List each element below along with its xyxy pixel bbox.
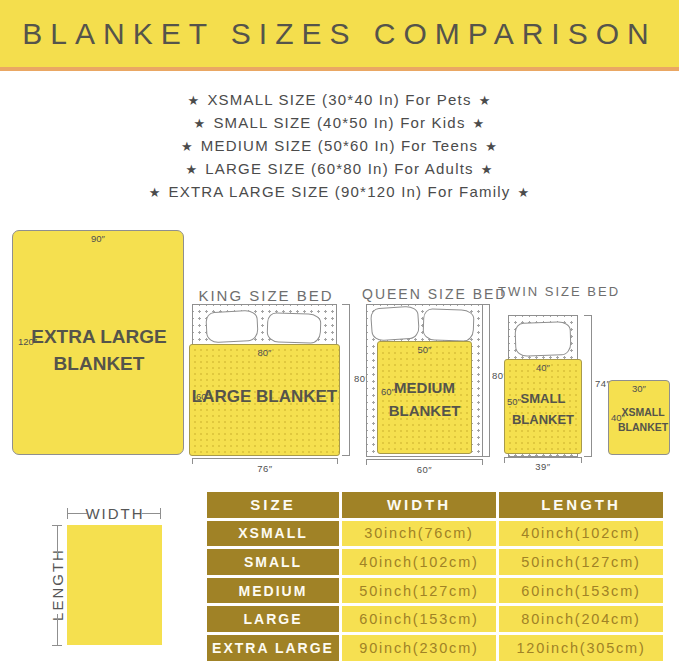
size-list-text: SMALL SIZE (40*50 In) For Kids	[213, 114, 465, 131]
extra-large-top-dim: 90″	[13, 233, 183, 244]
page-title: BLANKET SIZES COMPARISON	[22, 17, 656, 51]
large-blanket-label: LARGE BLANKET	[190, 387, 339, 407]
xsmall-top-dim: 30″	[609, 383, 669, 394]
table-row-size: SMALL	[207, 549, 339, 575]
width-dim-line	[142, 513, 161, 514]
medium-blanket: 50″ 60″ MEDIUM BLANKET	[377, 341, 472, 454]
table-row-width: 30inch(76cm)	[342, 521, 496, 547]
king-bed-title: KING SIZE BED	[192, 287, 340, 304]
pillow	[422, 308, 474, 342]
twin-bed-title: TWIN SIZE BED	[498, 284, 598, 299]
length-dim-tick	[52, 645, 62, 646]
size-table: SIZE WIDTH LENGTH XSMALL 30inch(76cm) 40…	[207, 492, 663, 661]
star-icon: ★	[174, 139, 201, 154]
extra-large-blanket-label: EXTRA LARGE BLANKET	[29, 323, 169, 377]
legend-width-label: WIDTH	[85, 505, 145, 522]
queen-height-dim-line	[482, 304, 490, 457]
pillow	[370, 305, 420, 341]
legend-length-label: LENGTH	[49, 545, 66, 625]
large-blanket: 80″ 60″ LARGE BLANKET	[189, 344, 340, 456]
table-row-size: MEDIUM	[207, 578, 339, 604]
pillow	[266, 312, 321, 344]
medium-blanket-top-dim: 50″	[378, 344, 471, 355]
table-row-size: EXTRA LARGE	[207, 635, 339, 661]
table-row-width: 60inch(153cm)	[342, 606, 496, 632]
king-width-dim: 76″	[192, 463, 338, 474]
table-row-length: 60inch(153cm)	[499, 578, 663, 604]
table-header-length: LENGTH	[499, 492, 663, 518]
xsmall-blanket: 30″ 40″ XSMALL BLANKET	[608, 380, 670, 455]
width-dim-tick	[67, 508, 68, 519]
queen-bed-title: QUEEN SIZE BED	[362, 286, 487, 302]
size-list-item: ★SMALL SIZE (40*50 In) For Kids★	[0, 111, 679, 134]
star-icon: ★	[510, 185, 537, 200]
king-height-dim-line	[342, 304, 350, 456]
size-list-item: ★EXTRA LARGE SIZE (90*120 In) For Family…	[0, 180, 679, 203]
table-row-width: 90inch(230cm)	[342, 635, 496, 661]
star-icon: ★	[472, 93, 499, 108]
table-row-length: 50inch(127cm)	[499, 549, 663, 575]
table-row-size: LARGE	[207, 606, 339, 632]
large-blanket-top-dim: 80″	[190, 347, 339, 358]
table-row-size: XSMALL	[207, 521, 339, 547]
xsmall-blanket-label: XSMALL BLANKET	[618, 405, 668, 435]
star-icon: ★	[142, 185, 169, 200]
star-icon: ★	[187, 116, 214, 131]
size-list: ★XSMALL SIZE (30*40 In) For Pets★ ★SMALL…	[0, 88, 679, 203]
pillow	[205, 310, 259, 344]
small-blanket-top-dim: 40″	[505, 362, 581, 373]
width-dim-tick	[160, 508, 161, 519]
extra-large-blanket: 90″ 120″ EXTRA LARGE BLANKET	[12, 230, 184, 455]
size-list-text: EXTRA LARGE SIZE (90*120 In) For Family	[169, 183, 511, 200]
small-blanket-label: SMALL BLANKET	[505, 388, 581, 430]
star-icon: ★	[181, 93, 208, 108]
table-header-width: WIDTH	[342, 492, 496, 518]
size-list-item: ★MEDIUM SIZE (50*60 In) For Teens★	[0, 134, 679, 157]
table-row-length: 40inch(102cm)	[499, 521, 663, 547]
table-row-length: 120inch(305cm)	[499, 635, 663, 661]
star-icon: ★	[474, 162, 501, 177]
table-row-width: 40inch(102cm)	[342, 549, 496, 575]
size-list-text: LARGE SIZE (60*80 In) For Adults	[205, 160, 474, 177]
small-blanket: 40″ 50″ SMALL BLANKET	[504, 359, 582, 454]
star-icon: ★	[466, 116, 493, 131]
twin-height-dim-line	[584, 315, 592, 457]
queen-width-dim: 60″	[366, 464, 483, 475]
length-dim-line	[57, 526, 58, 555]
title-banner: BLANKET SIZES COMPARISON	[0, 0, 679, 71]
table-row-width: 50inch(127cm)	[342, 578, 496, 604]
pillow	[514, 321, 571, 357]
size-list-text: XSMALL SIZE (30*40 In) For Pets	[207, 91, 471, 108]
length-dim-line	[57, 614, 58, 645]
star-icon: ★	[178, 162, 205, 177]
medium-blanket-label: MEDIUM BLANKET	[378, 376, 471, 422]
width-dim-line	[67, 513, 87, 514]
twin-width-dim: 39″	[504, 461, 582, 472]
size-list-text: MEDIUM SIZE (50*60 In) For Teens	[201, 137, 478, 154]
table-row-length: 80inch(204cm)	[499, 606, 663, 632]
star-icon: ★	[478, 139, 505, 154]
table-header-size: SIZE	[207, 492, 339, 518]
size-list-item: ★LARGE SIZE (60*80 In) For Adults★	[0, 157, 679, 180]
blanket-size-infographic: BLANKET SIZES COMPARISON ★XSMALL SIZE (3…	[0, 0, 679, 667]
size-list-item: ★XSMALL SIZE (30*40 In) For Pets★	[0, 88, 679, 111]
legend-rect	[67, 525, 162, 645]
